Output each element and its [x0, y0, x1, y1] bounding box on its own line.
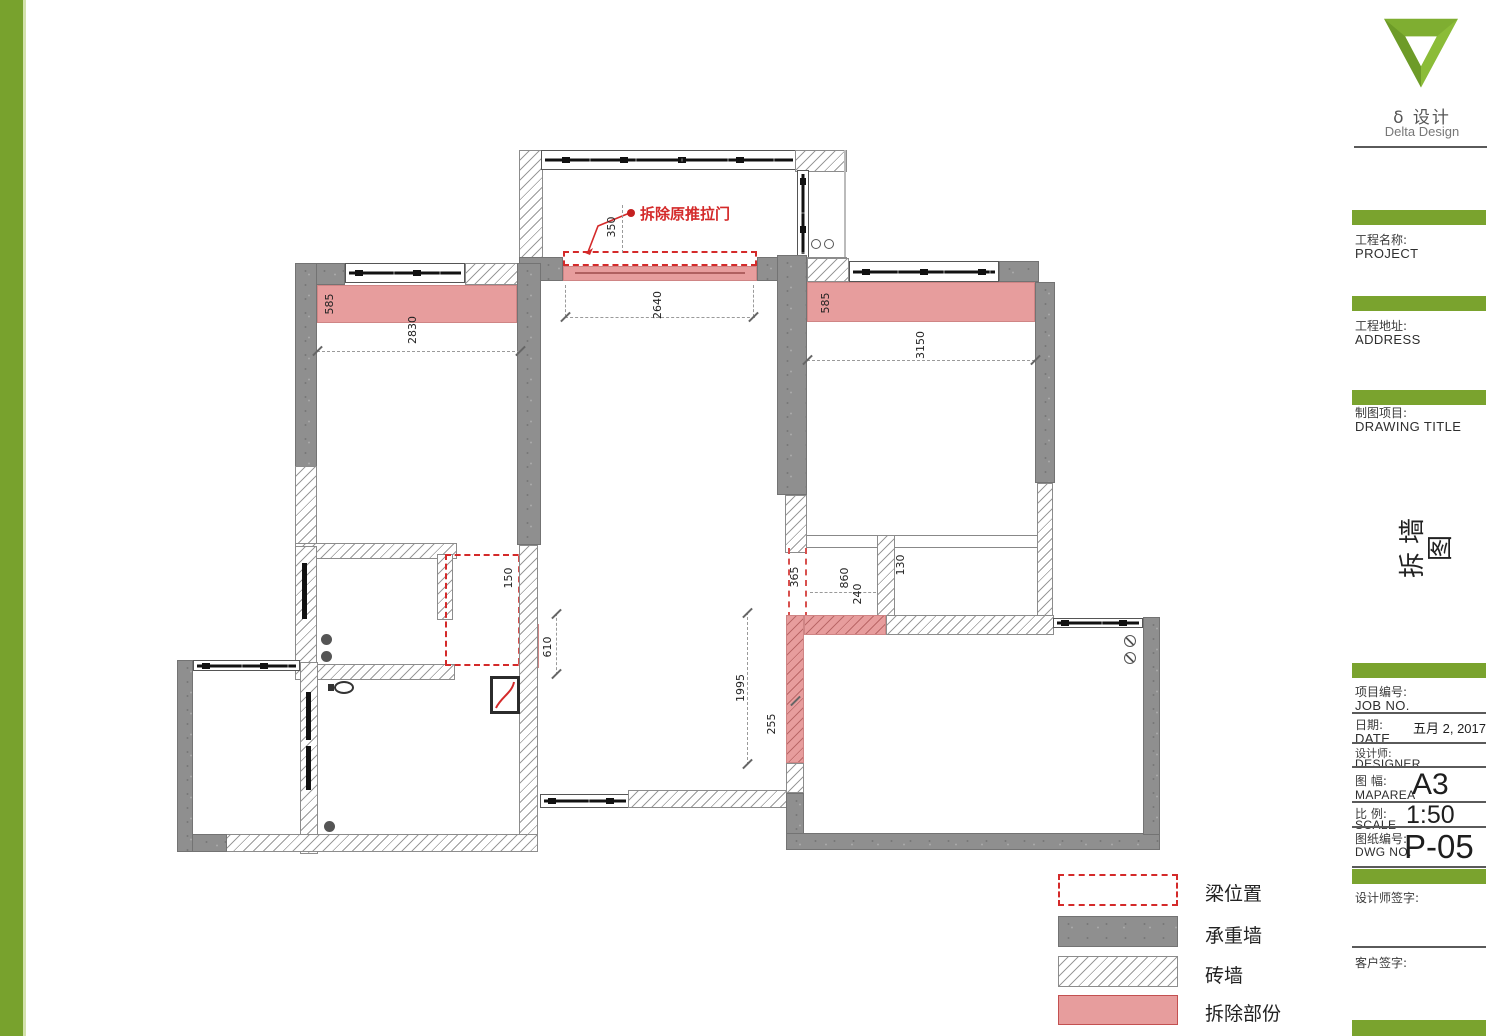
- legend-swatch-beam: [1058, 874, 1178, 906]
- dimension-line: [565, 285, 566, 317]
- drawing-title-vertical: 拆墙图: [1399, 499, 1427, 589]
- load-bearing-wall: [295, 263, 317, 468]
- demolish-door-annotation: 拆除原推拉门: [640, 203, 730, 224]
- brick-wall: [465, 263, 522, 285]
- load-bearing-wall: [777, 255, 807, 495]
- load-bearing-wall: [1143, 617, 1160, 835]
- door-opening: [807, 535, 877, 548]
- toilet-tank: [328, 684, 334, 691]
- legend-label-load-bearing: 承重墙: [1205, 921, 1262, 948]
- window: [541, 150, 797, 170]
- window-bar: [306, 746, 311, 790]
- toilet-icon: [334, 681, 354, 694]
- designer-sign-label: 设计师签字:: [1355, 889, 1419, 906]
- brick-wall: [807, 258, 849, 282]
- brick-wall: [295, 543, 457, 559]
- brick-wall: [200, 834, 538, 852]
- dimension-label: 350: [606, 207, 618, 247]
- sink-circle-icon: [824, 239, 834, 249]
- load-bearing-wall: [786, 793, 804, 835]
- legend-swatch-brick: [1058, 956, 1178, 987]
- brick-wall: [519, 150, 543, 260]
- door-swing-icon: [493, 679, 517, 711]
- dimension-label: 585: [324, 284, 336, 324]
- dimension-line: [317, 351, 520, 352]
- brick-wall: [886, 615, 1054, 635]
- legend-label-beam: 梁位置: [1205, 879, 1262, 906]
- dimension-label: 3150: [915, 325, 927, 365]
- client-sign-label: 客户签字:: [1355, 954, 1407, 971]
- window-bar: [302, 563, 307, 619]
- section-bar: [1352, 296, 1486, 311]
- divider: [1352, 866, 1486, 868]
- dimension-label: 1995: [735, 668, 747, 708]
- dimension-line: [556, 613, 557, 675]
- section-bar: [1352, 1020, 1486, 1036]
- maparea-label-en: MAPAREA: [1355, 788, 1416, 802]
- demolition-wall: [804, 615, 886, 635]
- window-bar: [306, 692, 311, 740]
- brick-wall: [785, 495, 807, 553]
- window: [849, 261, 999, 282]
- drawing-label-en: DRAWING TITLE: [1355, 419, 1461, 434]
- load-bearing-wall: [999, 261, 1039, 282]
- project-label-en: PROJECT: [1355, 246, 1418, 261]
- address-label-en: ADDRESS: [1355, 332, 1421, 347]
- annotation-dot: [627, 209, 635, 217]
- brick-wall: [295, 664, 455, 680]
- dwg-value: P-05: [1404, 828, 1474, 866]
- left-margin-bar: [0, 0, 26, 1036]
- divider: [1352, 742, 1486, 744]
- brick-wall: [519, 545, 538, 852]
- brick-wall: [795, 150, 847, 172]
- date-value: 五月 2, 2017: [1413, 718, 1486, 737]
- load-bearing-wall: [517, 263, 541, 545]
- outlet-circle-icon: [1124, 635, 1136, 647]
- demolition-area: [807, 282, 1035, 322]
- brick-wall: [786, 763, 804, 793]
- dimension-line: [753, 285, 754, 317]
- brick-wall: [628, 790, 788, 808]
- window: [1053, 618, 1143, 628]
- load-bearing-wall: [1035, 282, 1055, 483]
- dimension-line: [622, 205, 623, 253]
- section-bar: [1352, 869, 1486, 884]
- legend-swatch-load-bearing: [1058, 916, 1178, 947]
- dimension-line: [747, 612, 748, 765]
- sink-circle-icon: [811, 239, 821, 249]
- legend-label-demolition: 拆除部份: [1205, 999, 1281, 1026]
- demolition-step-line: [575, 272, 745, 274]
- logo-text-en: Delta Design: [1376, 124, 1468, 139]
- dimension-label: 610: [542, 627, 554, 667]
- window: [797, 170, 809, 258]
- fixture-dot: [324, 821, 335, 832]
- dimension-label: 365: [789, 557, 801, 597]
- brick-wall: [877, 535, 895, 619]
- job-label-en: JOB NO.: [1355, 698, 1410, 713]
- dimension-label: 2640: [652, 285, 664, 325]
- dimension-label: 150: [503, 558, 515, 598]
- window: [193, 660, 300, 671]
- window: [345, 263, 465, 283]
- demolition-wall: [786, 615, 804, 763]
- brick-wall: [295, 466, 317, 546]
- balcony-edge-line: [844, 150, 846, 258]
- legend-swatch-demolition: [1058, 995, 1178, 1025]
- maparea-value: A3: [1412, 768, 1449, 802]
- divider: [1354, 146, 1487, 148]
- load-bearing-wall: [786, 833, 1160, 850]
- outlet-circle-icon: [1124, 652, 1136, 664]
- drawing-sheet: 拆除原推拉门 350 585 2830 2640 150 610: [0, 0, 1500, 1036]
- load-bearing-wall: [177, 660, 193, 852]
- divider: [1352, 712, 1486, 714]
- legend-label-brick: 砖墙: [1205, 961, 1243, 988]
- maparea-label-cn: 图 幅:: [1355, 772, 1387, 789]
- window: [540, 794, 630, 808]
- section-bar: [1352, 663, 1486, 678]
- dimension-label: 860: [839, 558, 851, 598]
- brick-wall: [1037, 483, 1053, 635]
- room-divider-line: [895, 535, 1037, 548]
- dimension-label: 2830: [407, 310, 419, 350]
- dimension-label: 130: [895, 545, 907, 585]
- fixture-dot: [321, 634, 332, 645]
- dimension-label: 585: [820, 283, 832, 323]
- door-to-demolish: [490, 676, 520, 714]
- section-bar: [1352, 210, 1486, 225]
- fixture-dot: [321, 651, 332, 662]
- dimension-label: 240: [852, 574, 864, 614]
- divider: [1352, 946, 1486, 948]
- delta-design-logo: [1377, 8, 1465, 100]
- section-bar: [1352, 390, 1486, 405]
- dimension-label: 255: [766, 704, 778, 744]
- designer-label-en: DESIGNER: [1355, 757, 1421, 771]
